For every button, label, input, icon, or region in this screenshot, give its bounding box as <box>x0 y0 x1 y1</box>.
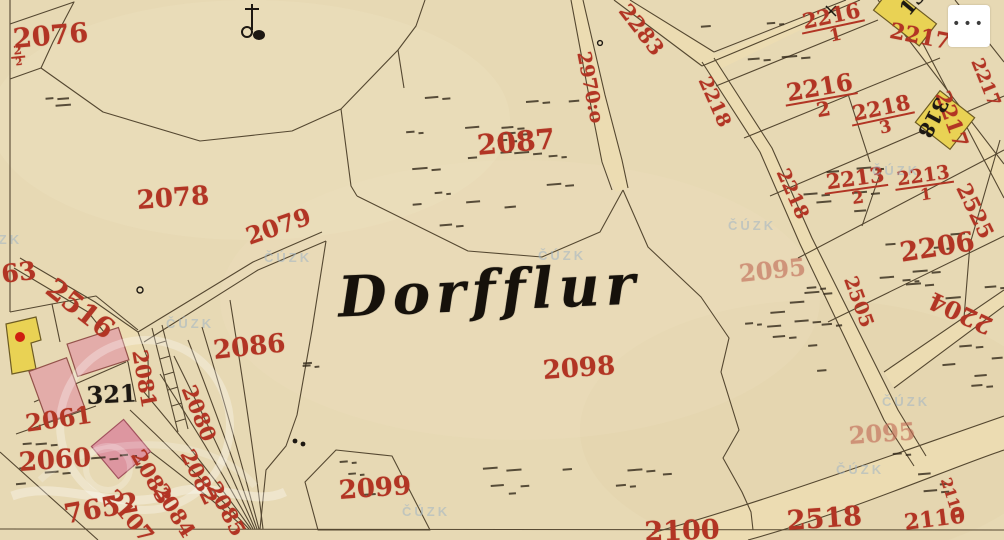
boundary-dot <box>301 442 306 447</box>
boundary-dot <box>293 439 298 444</box>
map-area-name: Dorfflur <box>337 251 643 330</box>
building-red-dot <box>15 332 25 342</box>
cadastral-map-viewer: 2076207820792087208620982099210025182110… <box>0 0 1004 540</box>
map-options-button[interactable]: ••• <box>948 5 990 47</box>
ellipsis-icon: ••• <box>952 17 986 31</box>
